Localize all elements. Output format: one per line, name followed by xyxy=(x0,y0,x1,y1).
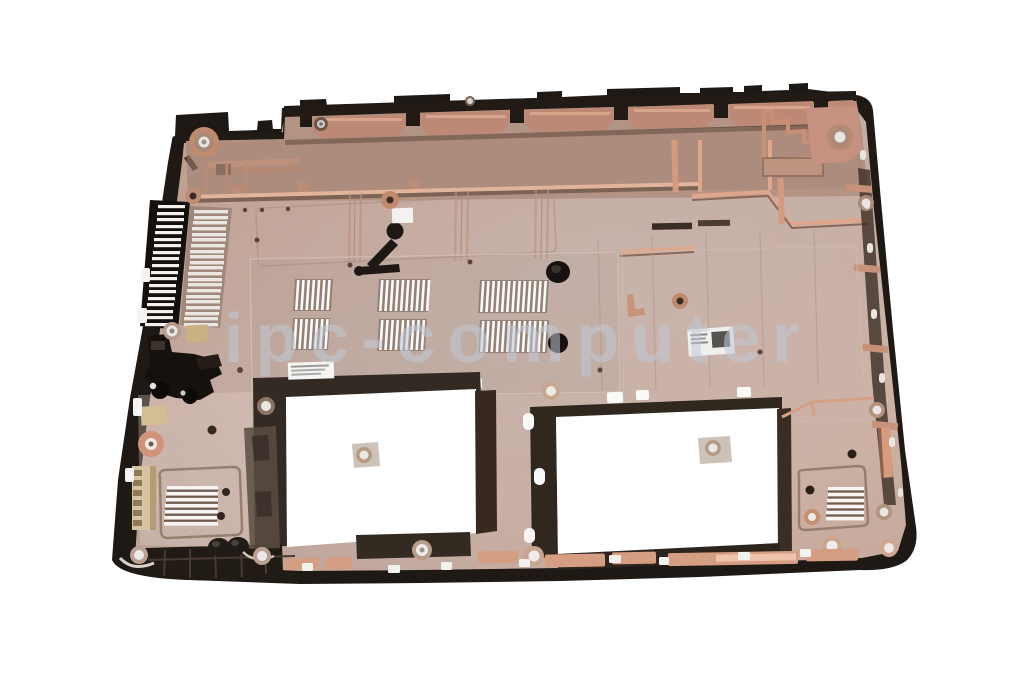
svg-text:ipc-computer: ipc-computer xyxy=(224,299,811,377)
